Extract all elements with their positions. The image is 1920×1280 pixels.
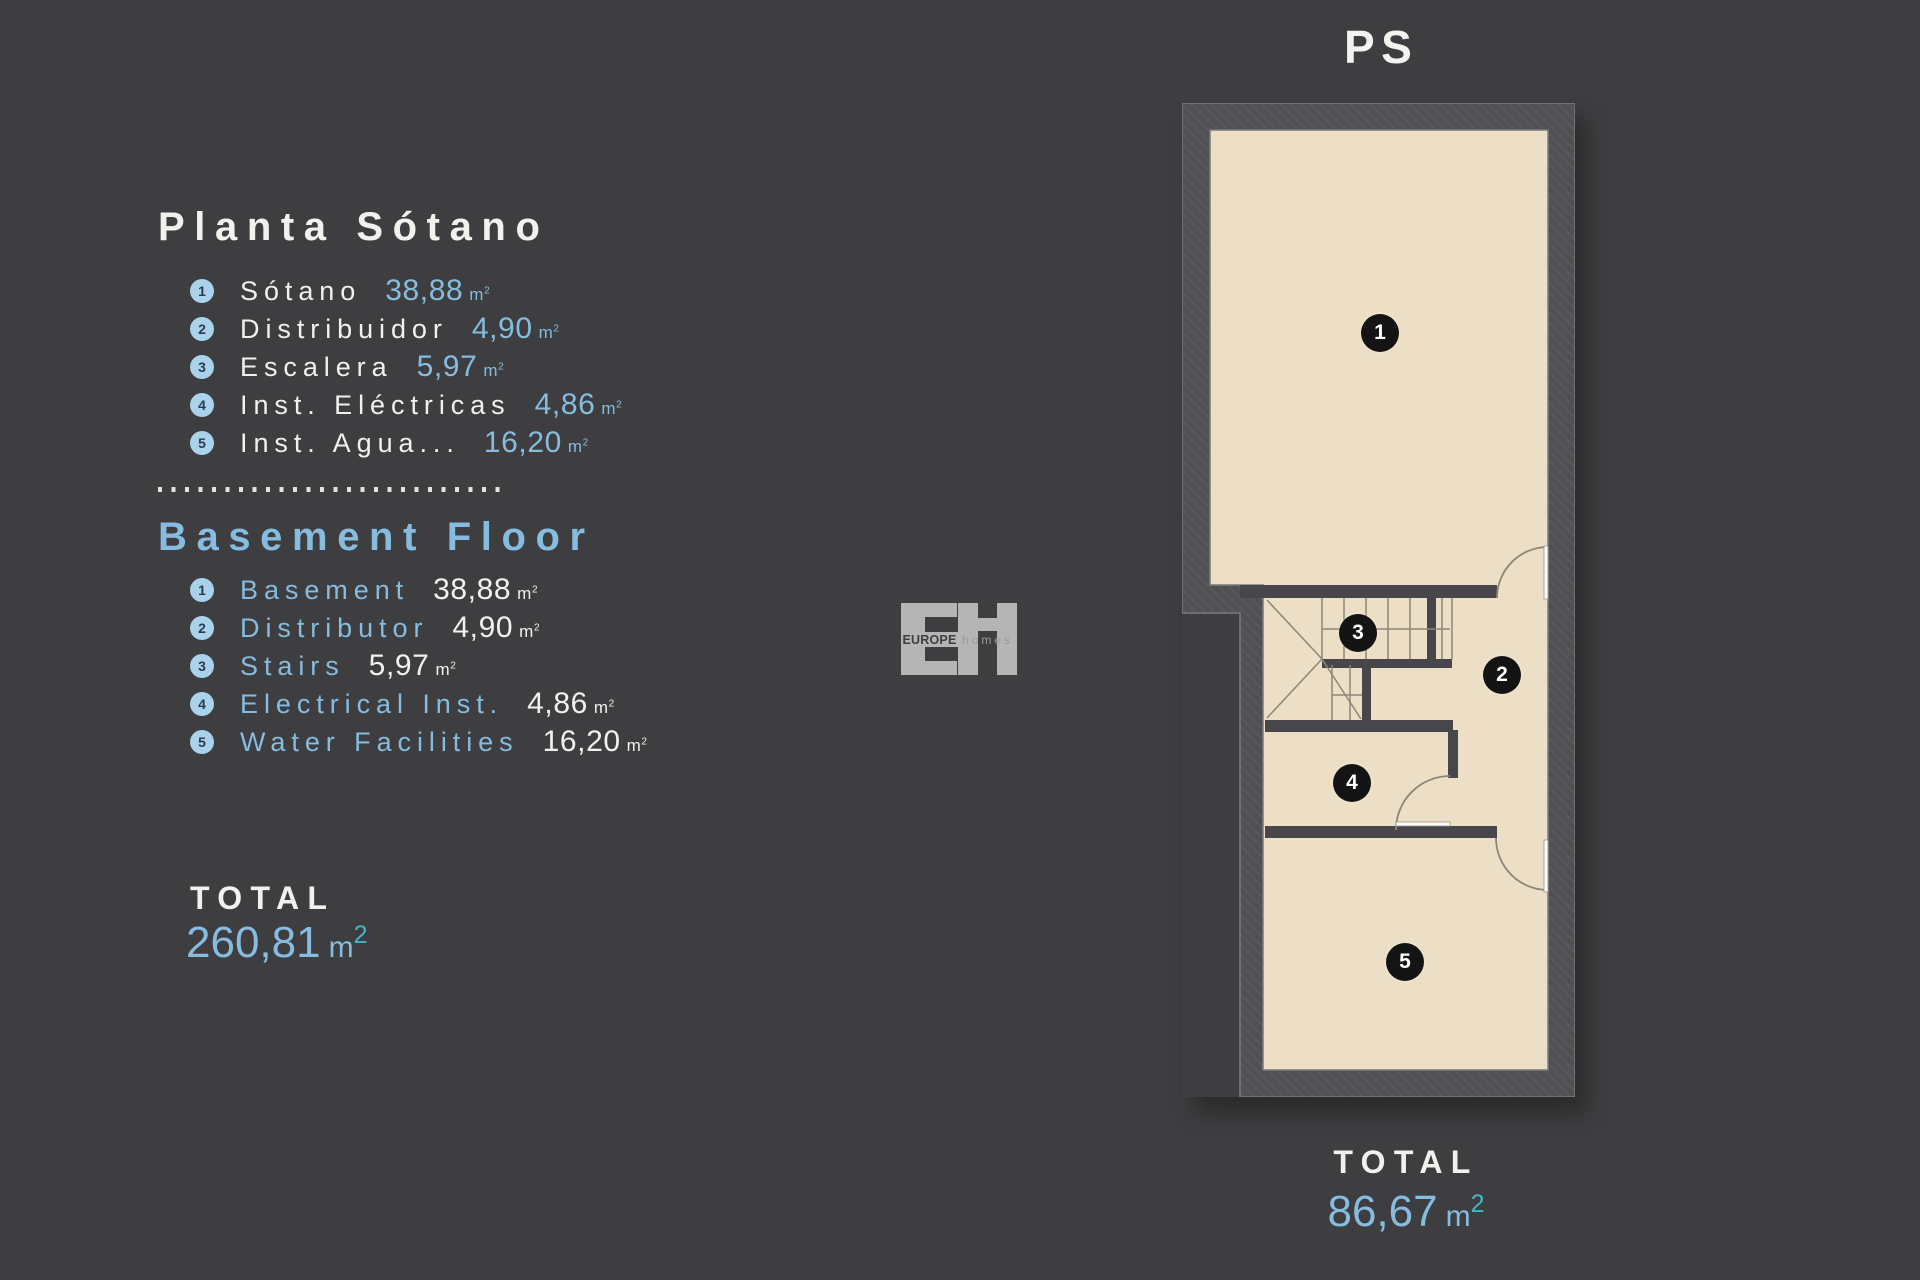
plan-title: PS [1344, 20, 1418, 74]
item-number-badge: 1 [190, 279, 214, 303]
logo-europe-text: EUROPE [901, 632, 958, 647]
item-number-badge: 4 [190, 393, 214, 417]
europe-homes-logo: EUROPE homes [901, 603, 1017, 675]
legend-row: 1 Sótano 38,88m2 [190, 272, 622, 310]
legend-row: 4 Electrical Inst. 4,86m2 [190, 685, 648, 723]
room-5-badge: 5 [1386, 943, 1424, 981]
room-2-badge: 2 [1483, 656, 1521, 694]
floorplan: 1 2 3 4 5 [1182, 103, 1575, 1097]
item-number-badge: 5 [190, 431, 214, 455]
item-unit: m2 [519, 622, 540, 641]
room-3-badge: 3 [1339, 614, 1377, 652]
item-unit: m2 [594, 698, 615, 717]
item-label: Inst. Eléctricas [240, 390, 511, 421]
item-unit: m2 [601, 399, 622, 418]
legend-row: 5 Inst. Agua... 16,20m2 [190, 424, 622, 462]
page-root: Planta Sótano 1 Sótano 38,88m2 2 Distrib… [0, 0, 1920, 1280]
room-4-badge: 4 [1333, 764, 1371, 802]
legend-row: 2 Distribuidor 4,90m2 [190, 310, 622, 348]
floorplan-drawing [1182, 103, 1575, 1097]
plan-total-value: 86,67m2 [1296, 1187, 1516, 1237]
item-value: 16,20m2 [484, 426, 589, 460]
item-number-badge: 1 [190, 578, 214, 602]
spanish-section-title: Planta Sótano [158, 206, 550, 248]
item-number-badge: 3 [190, 355, 214, 379]
item-unit: m2 [517, 584, 538, 603]
left-total-value: 260,81m2 [186, 918, 367, 968]
logo-letter-h-crossbar [958, 618, 1017, 631]
logo-letter-e-arm [901, 661, 957, 675]
item-label: Electrical Inst. [240, 689, 503, 720]
legend-row: 4 Inst. Eléctricas 4,86m2 [190, 386, 622, 424]
english-legend: 1 Basement 38,88m2 2 Distributor 4,90m2 … [190, 571, 648, 761]
room-1-badge: 1 [1361, 314, 1399, 352]
item-value: 16,20m2 [543, 725, 648, 759]
logo-letter-e-arm [901, 603, 957, 617]
legend-row: 3 Stairs 5,97m2 [190, 647, 648, 685]
item-number-badge: 3 [190, 654, 214, 678]
item-number-badge: 4 [190, 692, 214, 716]
item-value: 4,86m2 [535, 388, 623, 422]
item-value: 5,97m2 [369, 649, 457, 683]
item-value: 4,90m2 [452, 611, 540, 645]
item-value: 38,88m2 [385, 274, 490, 308]
item-unit: m2 [627, 736, 648, 755]
item-number-badge: 2 [190, 616, 214, 640]
item-label: Basement [240, 575, 409, 606]
logo-homes-text: homes [958, 632, 1017, 647]
item-label: Water Facilities [240, 727, 519, 758]
item-unit: m2 [469, 285, 490, 304]
english-section-title: Basement Floor [158, 516, 595, 558]
legend-row: 2 Distributor 4,90m2 [190, 609, 648, 647]
dotted-divider [158, 487, 504, 492]
item-label: Sótano [240, 276, 361, 307]
item-value: 38,88m2 [433, 573, 538, 607]
item-label: Distributor [240, 613, 428, 644]
item-label: Escalera [240, 352, 393, 383]
item-unit: m2 [539, 323, 560, 342]
item-value: 4,86m2 [527, 687, 615, 721]
item-unit: m2 [568, 437, 589, 456]
plan-total-label: TOTAL [1296, 1144, 1516, 1181]
item-label: Stairs [240, 651, 345, 682]
item-value: 4,90m2 [472, 312, 560, 346]
legend-row: 5 Water Facilities 16,20m2 [190, 723, 648, 761]
item-number-badge: 5 [190, 730, 214, 754]
item-unit: m2 [483, 361, 504, 380]
item-value: 5,97m2 [417, 350, 505, 384]
legend-row: 3 Escalera 5,97m2 [190, 348, 622, 386]
item-label: Distribuidor [240, 314, 448, 345]
legend-row: 1 Basement 38,88m2 [190, 571, 648, 609]
item-unit: m2 [435, 660, 456, 679]
spanish-legend: 1 Sótano 38,88m2 2 Distribuidor 4,90m2 3… [190, 272, 622, 462]
item-number-badge: 2 [190, 317, 214, 341]
logo-text-band: EUROPE homes [901, 632, 1017, 647]
left-total-label: TOTAL [190, 880, 335, 917]
plan-total-block: TOTAL 86,67m2 [1296, 1144, 1516, 1237]
item-label: Inst. Agua... [240, 428, 460, 459]
